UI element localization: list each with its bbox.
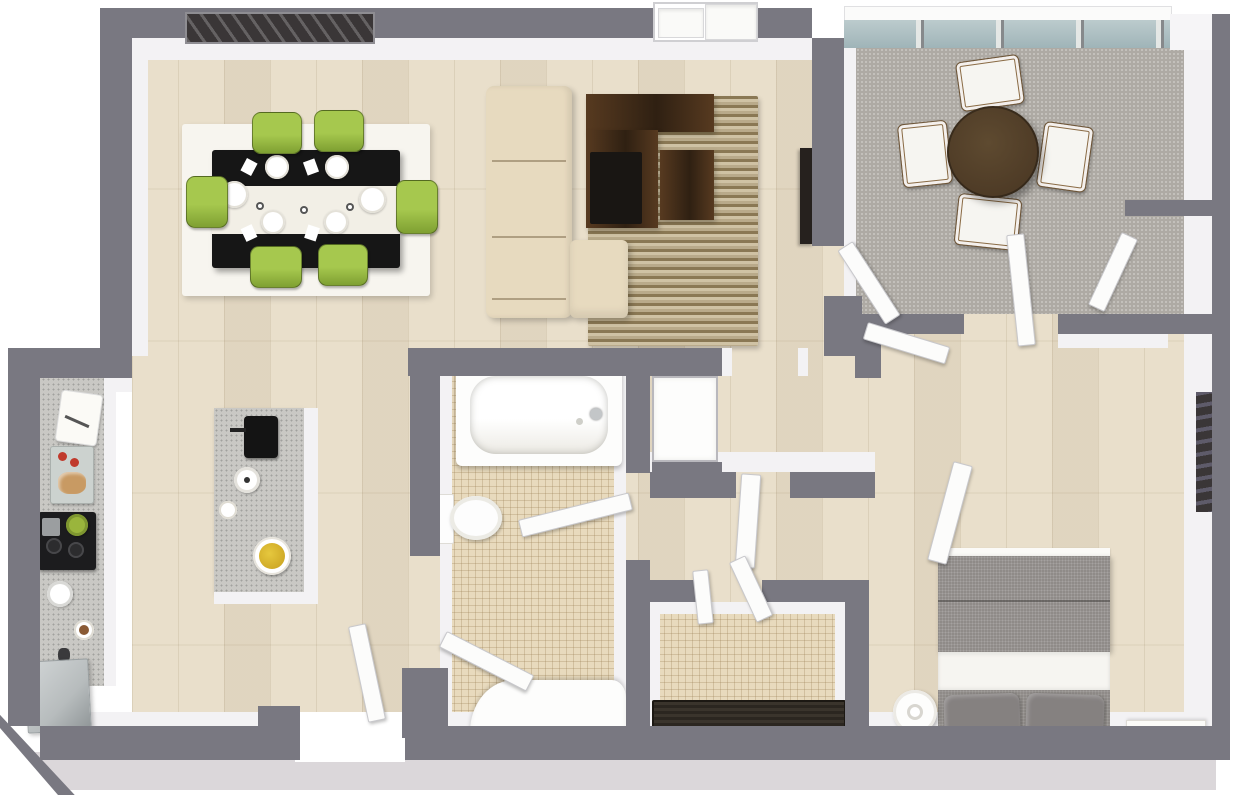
island-edge [214,592,318,604]
wall-segment-bath-left [410,376,440,556]
bananas [259,543,285,569]
window-ledge [658,8,704,38]
chaise-lounge [570,240,628,318]
cutting-board [55,389,104,446]
tomato [70,458,79,467]
counter-edge [104,372,116,686]
wall-segment-right [1212,14,1230,760]
wall-artwork [185,12,375,44]
bed-duvet [938,556,1110,652]
side-table-bowl [907,704,923,720]
wall-inner-face [1058,334,1168,348]
coffee-machine [244,416,278,458]
sectional-sofa [486,86,572,318]
wall-segment-closet-top [628,348,722,376]
bathtub-faucet [590,408,602,420]
wall-segment-laundry-top-left [650,580,700,602]
wall-segment-laundry-top-right [762,580,858,602]
utensil-box [42,518,60,536]
linen-closet [652,376,718,462]
wall-segment-bottom-left [40,726,300,760]
coffee-cup [346,203,354,211]
cooktop-burner [68,542,84,558]
dinner-plate [324,210,348,234]
green-mixing-bowl [66,514,88,536]
dining-chair [396,180,438,234]
dinner-plate [265,155,289,179]
wall-segment-hall-b [790,472,875,498]
window-ledge [705,4,757,40]
seat-cushion-divider [492,236,566,238]
bedroom-wall-art [1196,392,1212,512]
wall-segment-entry-step [258,706,300,726]
bed-sheet-fold [938,652,1110,692]
island-edge [304,408,318,604]
glass-wall-corner [1170,14,1212,50]
floor-plan-canvas [0,0,1240,795]
dining-chair [318,244,368,286]
wall-segment-hall-a [650,472,736,498]
coffee-cup [300,206,308,214]
round-sink [47,581,73,607]
patio-chair [897,120,953,189]
kettle-lid [244,477,250,483]
doorway-jamb [798,348,808,376]
bathtub-basin [470,376,608,454]
tomato [58,452,67,461]
seat-cushion-divider [492,298,566,300]
tv-screen [590,152,642,224]
side-plate [219,501,237,519]
bread-loaf [58,472,86,494]
wall-segment-bath-right-upper [626,376,650,473]
wall-segment-top-right [758,8,812,38]
duvet-seam [938,600,1110,602]
coffee-machine-handle [230,428,246,432]
cooktop-burner [46,538,62,554]
dining-chair [186,176,228,228]
glass-curtain-wall [844,20,1170,48]
round-patio-table [947,106,1039,198]
dinner-plate [325,155,349,179]
wall-segment-bath-right-lower [626,560,650,736]
wall-segment-bottom-right [405,726,1212,760]
wall-segment-laundry-right [845,580,869,736]
wall-segment-top-left [100,8,653,38]
wall-inner-face [132,38,148,356]
wall-segment-bath-pillar [402,668,448,738]
media-console [586,94,714,132]
wall-segment-left-upper [100,8,132,356]
dinner-plate [261,210,285,234]
wall-segment-closet-bottom [652,462,722,474]
dining-chair [250,246,302,288]
wall-inner-face [1184,24,1212,726]
floor-entry-threshold [295,712,405,762]
bathtub-drain [576,418,583,425]
dining-chair [252,112,302,154]
doorway-jamb [722,348,732,376]
seat-cushion-divider [492,160,566,162]
wall-segment-bath-top [408,348,628,376]
wall-segment-patio-niche [1125,200,1212,216]
wall-segment-divider [812,38,844,246]
media-side-table [660,150,714,220]
pastry [79,625,89,635]
wall-segment-left-lower [8,348,40,726]
patio-chair [955,54,1025,112]
patio-chair [1036,121,1095,193]
wall-inner-face [440,376,452,712]
dinner-plate [359,186,386,213]
wall-segment-patio-bottom-right [1058,314,1212,334]
dining-chair [314,110,364,152]
coffee-cup [256,202,264,210]
toilet-bowl [450,496,502,540]
